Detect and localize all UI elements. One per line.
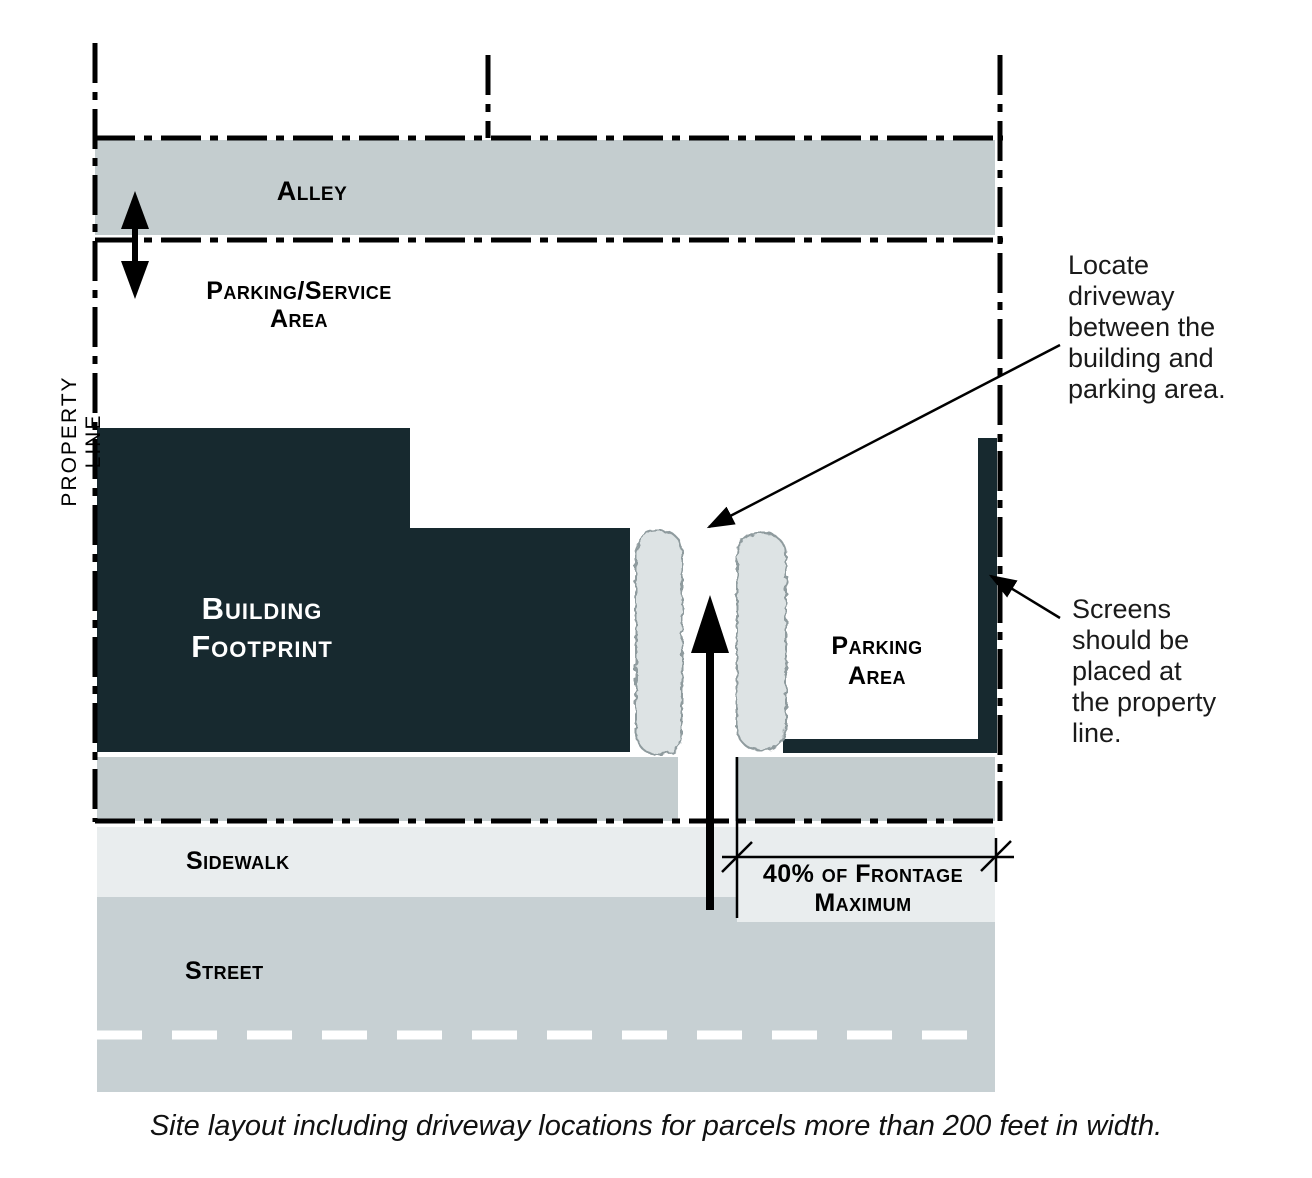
hedge-screen-left xyxy=(636,531,682,754)
annotation-line: Screens xyxy=(1072,594,1216,625)
annotation-line: driveway xyxy=(1068,281,1226,312)
building-label-line2: Footprint xyxy=(132,628,392,666)
site-plan-linework xyxy=(0,0,1312,1178)
frontage-line2: Maximum xyxy=(723,889,1003,918)
annotation-line: the property xyxy=(1072,687,1216,718)
property-line-label: PROPERTY LINE xyxy=(58,351,82,531)
sidewalk-label: Sidewalk xyxy=(186,847,290,876)
apron-strip-right xyxy=(735,757,995,821)
annotation-line: placed at xyxy=(1072,656,1216,687)
parking-area-line2: Area xyxy=(777,661,977,691)
parking-service-line2: Area xyxy=(179,305,419,333)
parking-border-bottom xyxy=(783,739,997,753)
figure-caption: Site layout including driveway locations… xyxy=(0,1110,1312,1143)
annotation-line: building and xyxy=(1068,343,1226,374)
apron-strip-left xyxy=(97,757,678,821)
alley-label: Alley xyxy=(202,176,422,207)
building-footprint-label: Building Footprint xyxy=(132,590,392,666)
parking-service-line1: Parking/Service xyxy=(179,277,419,305)
parking-area-label: Parking Area xyxy=(777,631,977,691)
annotation-line: parking area. xyxy=(1068,374,1226,405)
frontage-line1: 40% of Frontage xyxy=(723,860,1003,889)
annotation-line: Locate xyxy=(1068,250,1226,281)
annotation-line: should be xyxy=(1072,625,1216,656)
parking-border-right xyxy=(978,438,997,753)
building-label-line1: Building xyxy=(132,590,392,628)
parking-service-area-label: Parking/Service Area xyxy=(179,277,419,333)
annotation-line: between the xyxy=(1068,312,1226,343)
street-band xyxy=(97,897,995,1092)
annotation-locate-driveway: Locate driveway between the building and… xyxy=(1068,250,1226,405)
leader-locate-driveway xyxy=(709,345,1060,527)
annotation-line: line. xyxy=(1072,718,1216,749)
parking-area-line1: Parking xyxy=(777,631,977,661)
street-label: Street xyxy=(185,957,264,986)
annotation-screens: Screens should be placed at the property… xyxy=(1072,594,1216,749)
site-layout-figure: Alley Parking/Service Area PROPERTY LINE… xyxy=(0,0,1312,1178)
frontage-maximum-label: 40% of Frontage Maximum xyxy=(723,860,1003,918)
